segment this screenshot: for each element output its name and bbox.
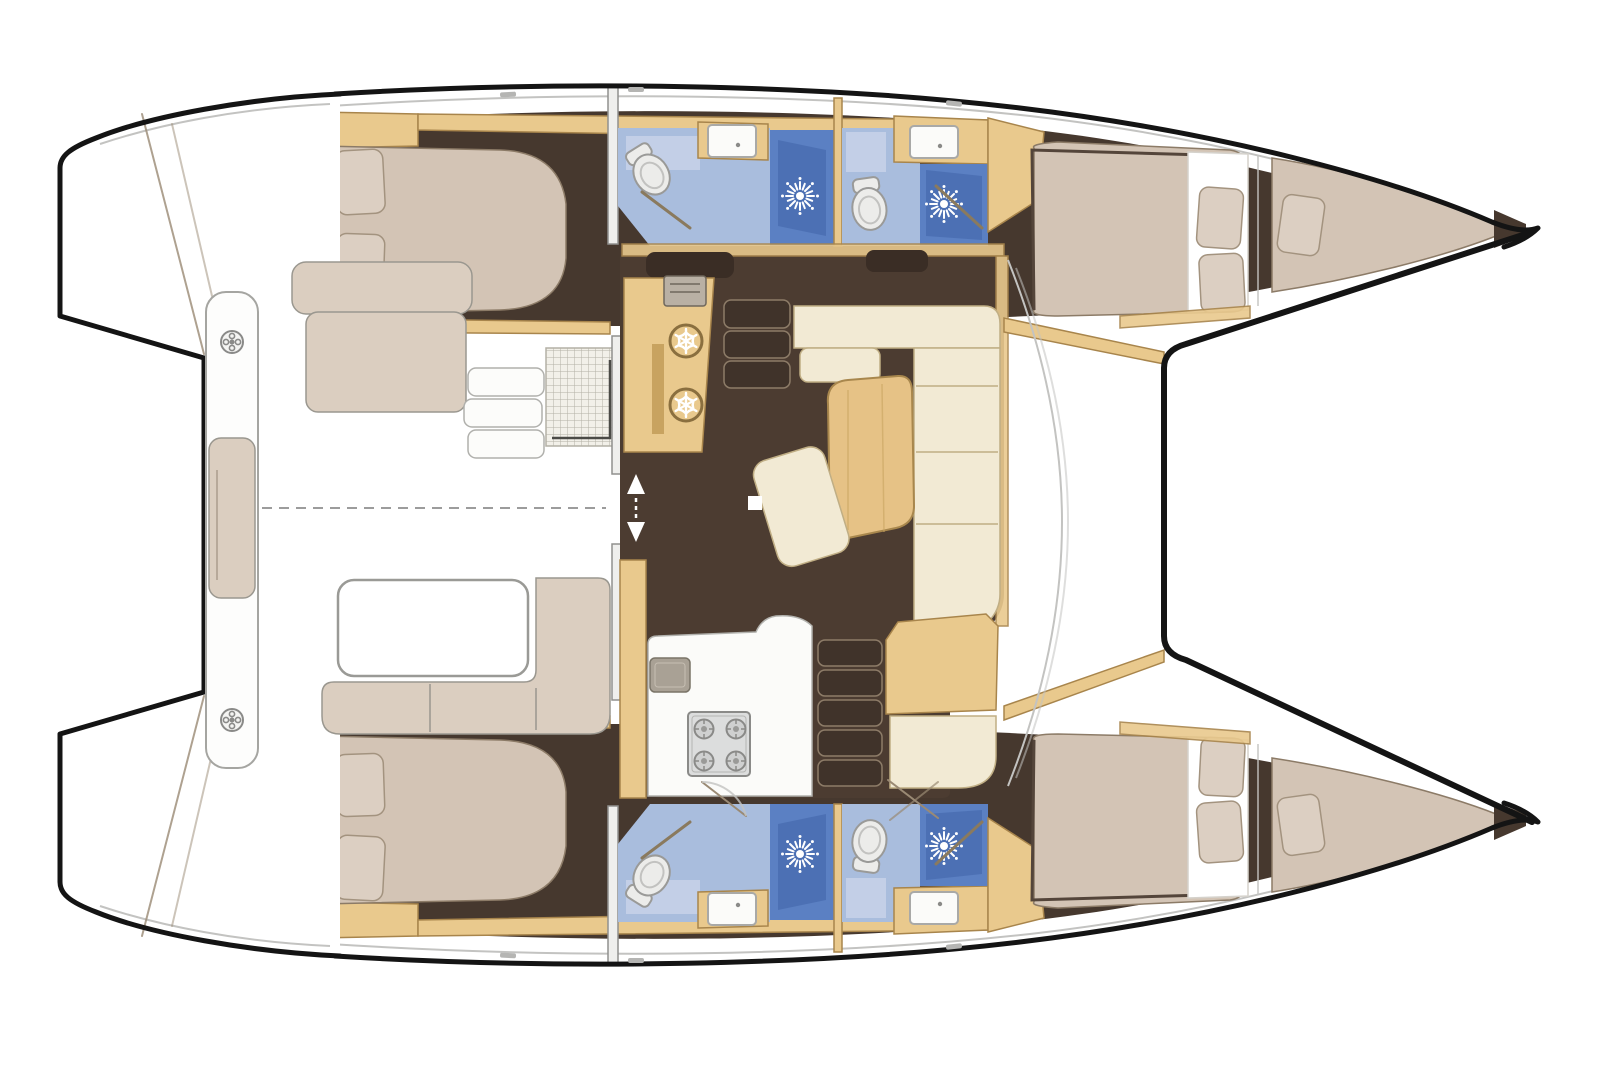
cockpit-table <box>338 580 528 676</box>
galley-appliance <box>664 276 706 306</box>
upper-hull-companionway-steps <box>724 300 790 388</box>
floor-plan-canvas <box>0 0 1600 1065</box>
four-burner-stove <box>688 712 750 776</box>
stove-burner-icon <box>727 720 746 739</box>
stove-burner-icon <box>695 720 714 739</box>
cockpit-seat-upper-cushion <box>306 312 466 412</box>
table-leg-mount <box>748 496 762 510</box>
overhead-locker <box>866 250 928 272</box>
lower-hull-companionway-steps <box>818 640 882 786</box>
cockpit-side-steps <box>464 368 544 458</box>
foredeck-knee-lower <box>1004 650 1164 720</box>
overhead-locker <box>646 252 734 278</box>
transom-bench-cushion <box>209 438 255 598</box>
grate-locker <box>546 348 614 446</box>
lower-transom-wing <box>60 692 340 956</box>
fridge-freezer-cabinet <box>624 276 714 452</box>
sofa-corner-unit <box>886 614 998 714</box>
nav-seat <box>890 716 996 788</box>
upper-transom-wing <box>60 94 340 358</box>
catamaran-floor-plan <box>0 0 1600 1065</box>
stove-burner-icon <box>727 752 746 771</box>
stove-burner-icon <box>695 752 714 771</box>
cockpit-seat-upper <box>292 262 472 314</box>
galley-outboard-cabinet <box>620 560 646 798</box>
winch-icon <box>221 331 243 353</box>
winch-icon <box>221 709 243 731</box>
